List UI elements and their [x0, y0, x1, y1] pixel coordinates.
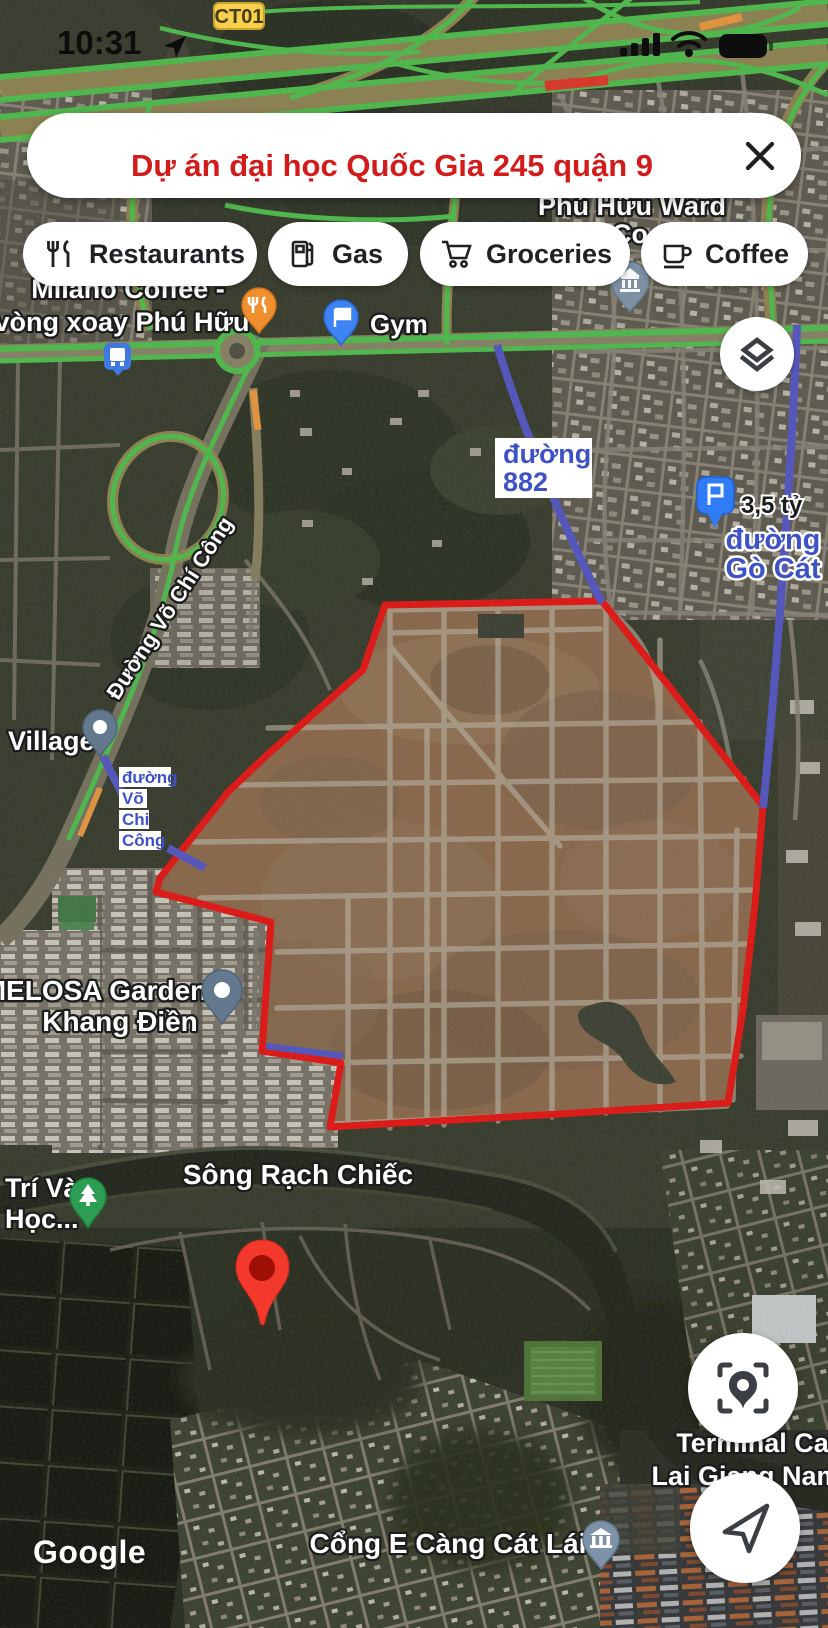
svg-text:Cổng E Càng Cát Lái: Cổng E Càng Cát Lái [310, 1528, 587, 1559]
svg-text:MELOSA Garden: MELOSA Garden [0, 975, 207, 1006]
svg-text:Village: Village [8, 726, 95, 756]
svg-text:đường: đường [503, 439, 591, 469]
svg-text:Gym: Gym [370, 309, 428, 339]
svg-text:Sông Rạch Chiếc: Sông Rạch Chiếc [183, 1159, 413, 1190]
svg-text:Võ: Võ [122, 789, 144, 808]
svg-text:đường: đường [122, 768, 178, 787]
svg-text:Công: Công [122, 831, 165, 850]
svg-text:882: 882 [503, 467, 548, 497]
svg-text:Chi: Chi [122, 810, 149, 829]
svg-text:Trí Và: Trí Và [5, 1173, 80, 1203]
svg-text:CT01: CT01 [215, 6, 264, 28]
svg-text:đường: đường [726, 524, 821, 556]
svg-text:3,5 tỷ: 3,5 tỷ [741, 492, 803, 519]
svg-text:Học...: Học... [5, 1204, 79, 1234]
svg-text:Gò Cát: Gò Cát [725, 553, 820, 585]
svg-text:Khang Điền: Khang Điền [42, 1006, 198, 1037]
svg-text:vòng xoay Phú Hữu: vòng xoay Phú Hữu [0, 307, 250, 337]
